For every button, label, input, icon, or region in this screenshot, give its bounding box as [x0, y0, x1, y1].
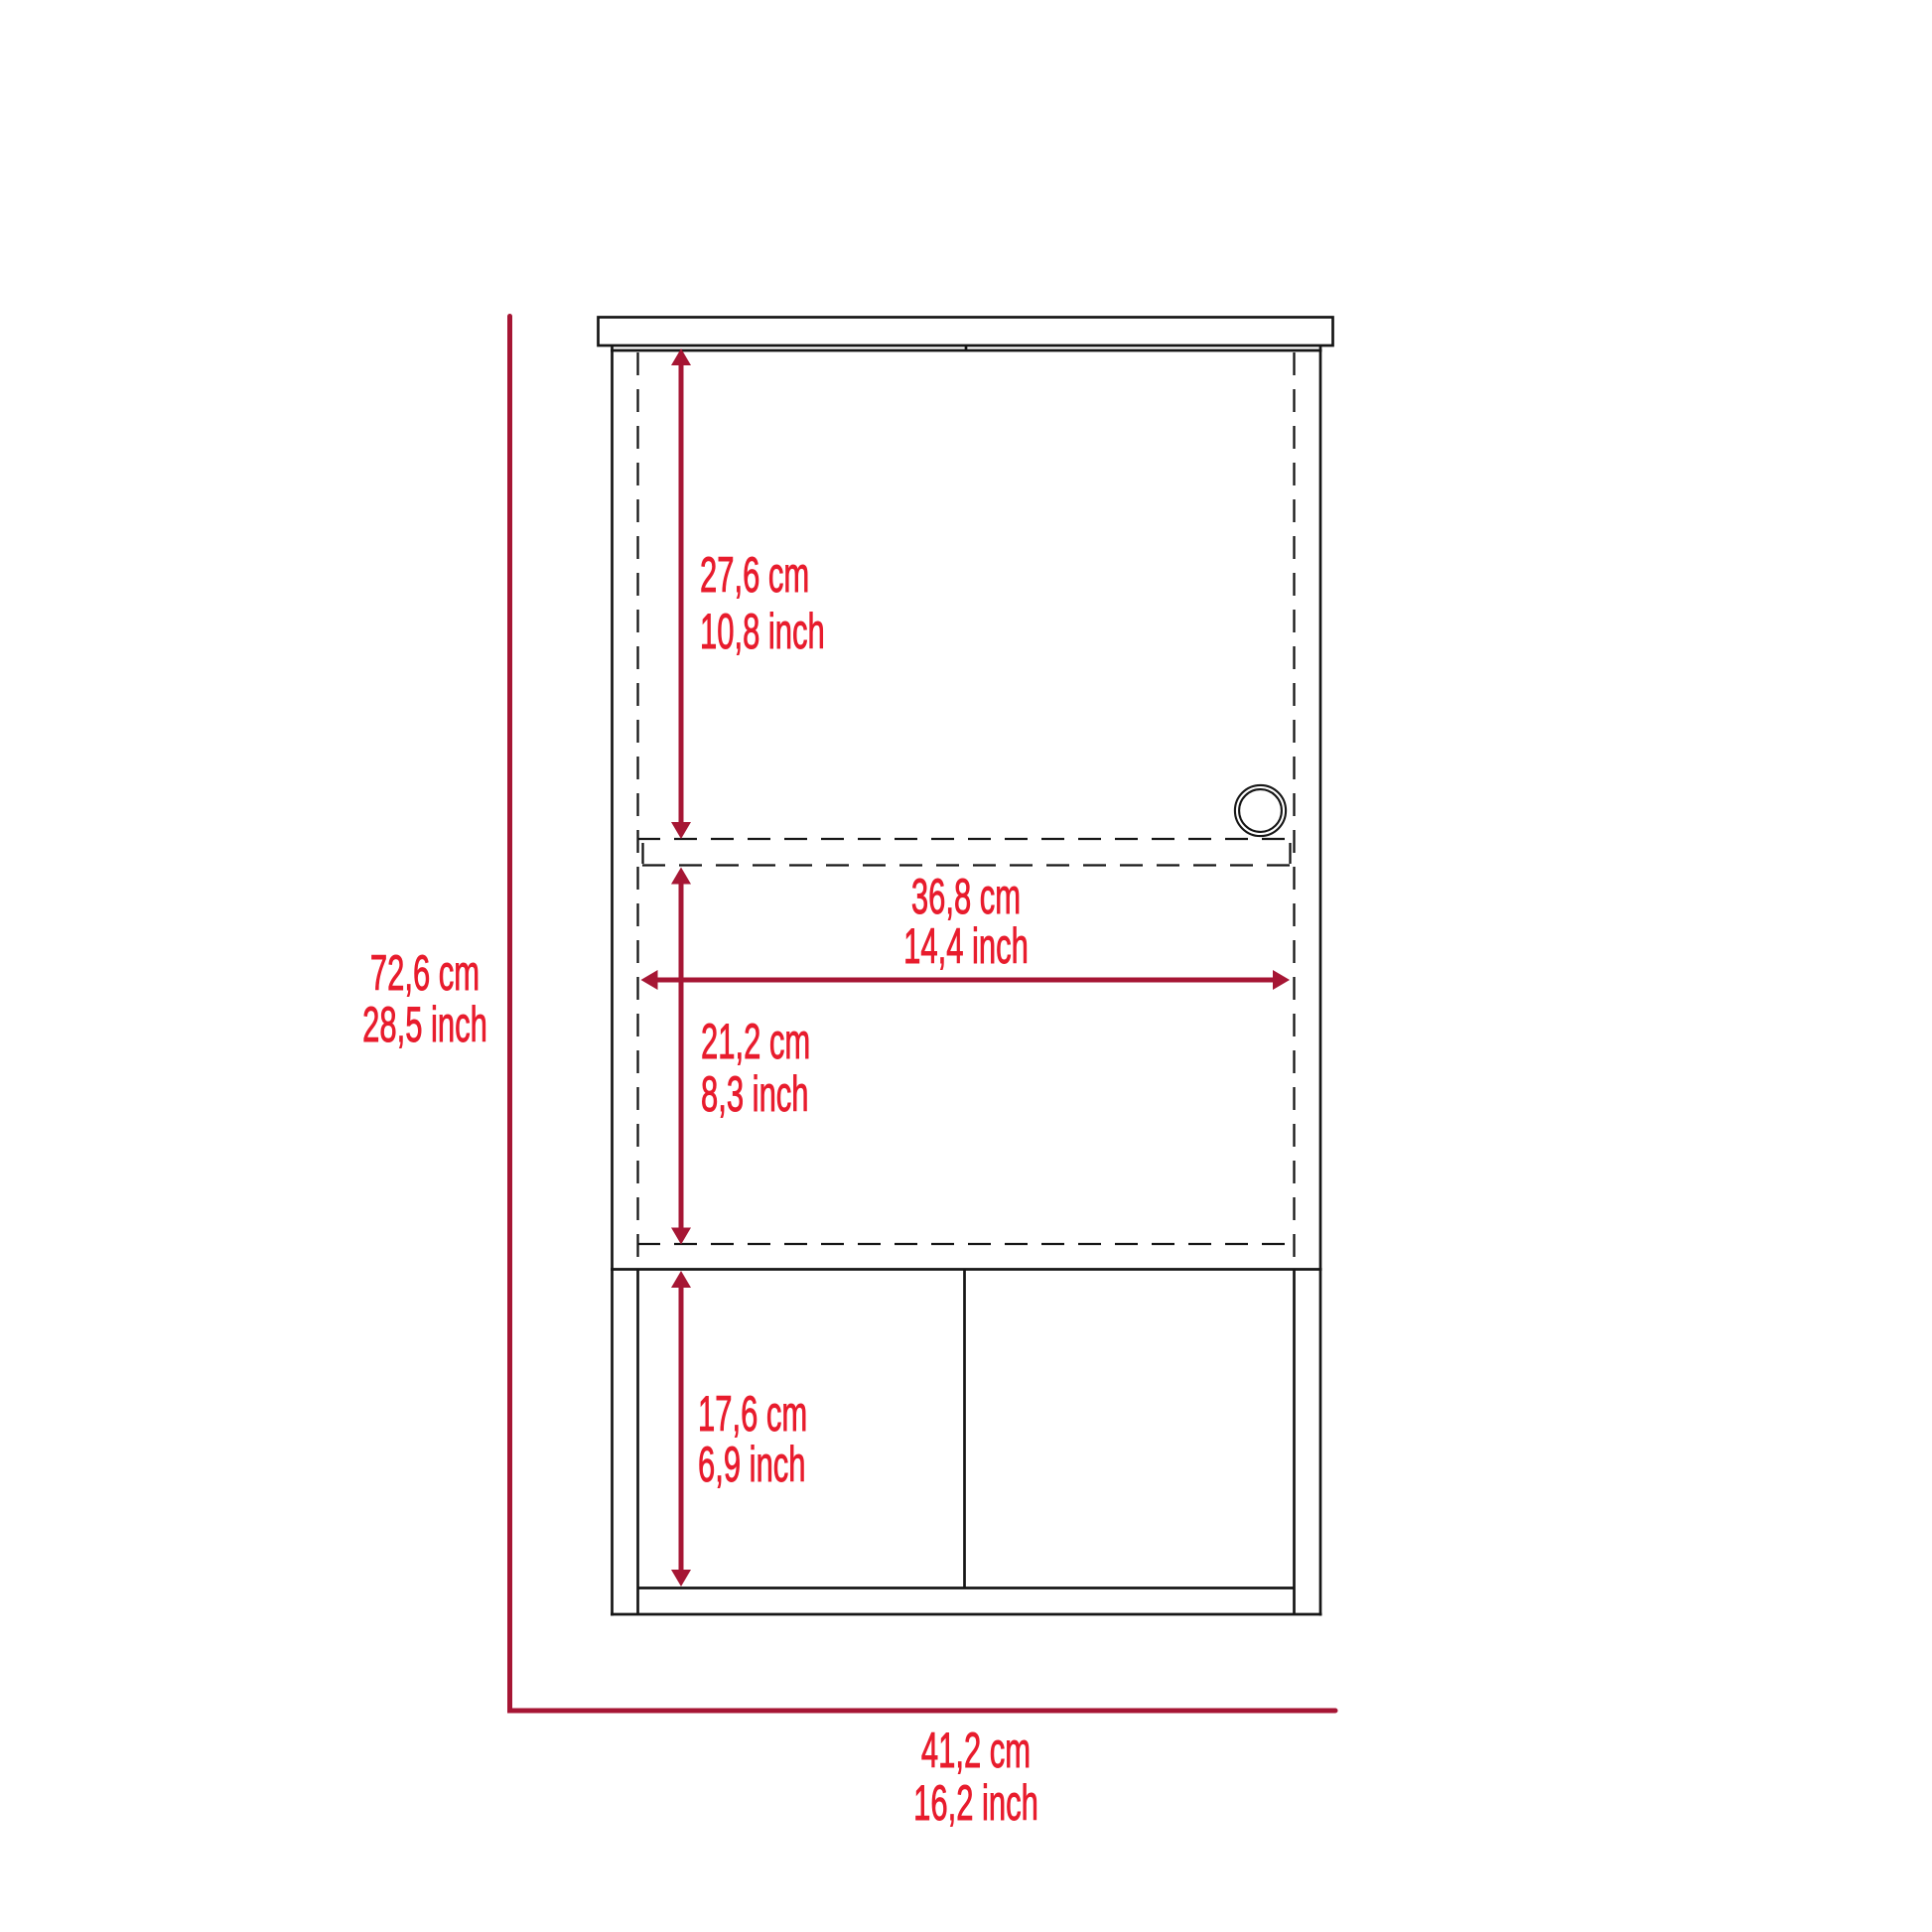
svg-text:17,6 cm: 17,6 cm [698, 1385, 807, 1441]
svg-text:36,8 cm: 36,8 cm [911, 868, 1021, 923]
svg-text:16,2 inch: 16,2 inch [913, 1774, 1038, 1830]
svg-text:14,4 inch: 14,4 inch [903, 917, 1029, 973]
svg-text:10,8 inch: 10,8 inch [700, 603, 825, 658]
svg-text:41,2 cm: 41,2 cm [921, 1722, 1031, 1777]
svg-text:28,5 inch: 28,5 inch [362, 996, 487, 1051]
svg-text:72,6 cm: 72,6 cm [370, 944, 480, 1000]
svg-text:6,9 inch: 6,9 inch [698, 1436, 806, 1491]
svg-text:8,3 inch: 8,3 inch [701, 1065, 809, 1121]
svg-text:21,2 cm: 21,2 cm [701, 1013, 810, 1068]
svg-text:27,6 cm: 27,6 cm [700, 546, 809, 602]
